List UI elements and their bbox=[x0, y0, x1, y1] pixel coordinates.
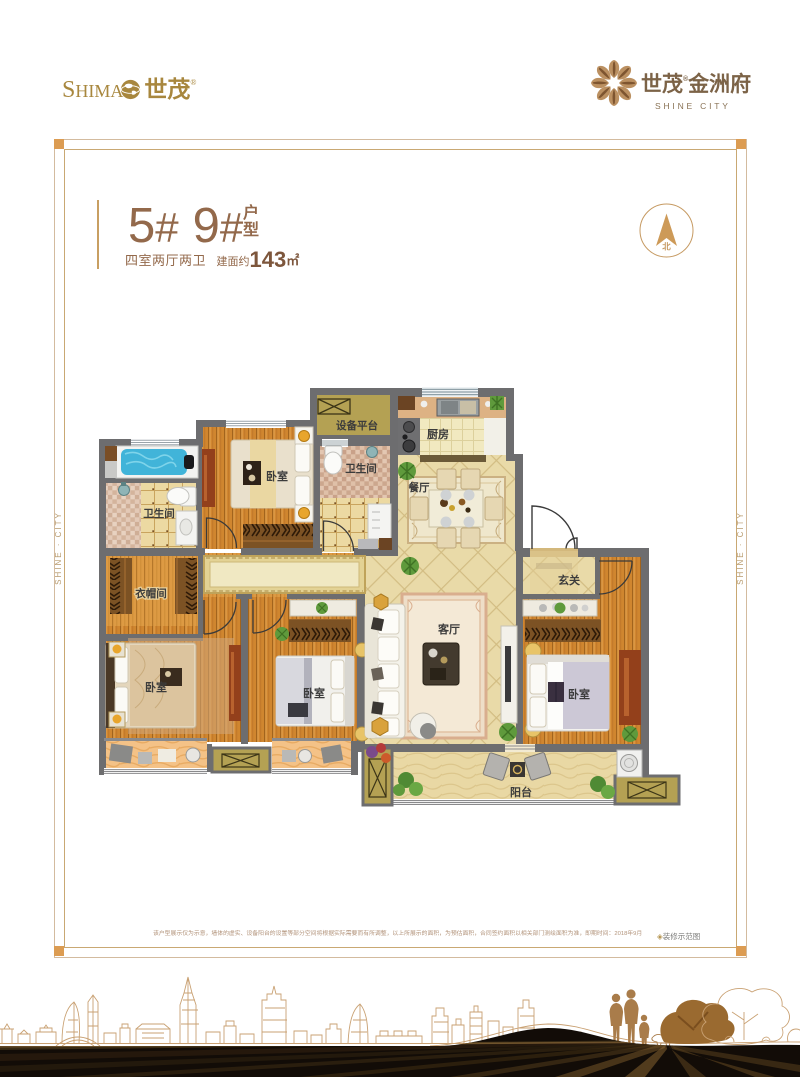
svg-text:衣帽间: 衣帽间 bbox=[135, 587, 167, 600]
svg-text:餐厅: 餐厅 bbox=[408, 481, 430, 494]
svg-text:卧室: 卧室 bbox=[568, 687, 590, 701]
svg-text:玄关: 玄关 bbox=[558, 573, 580, 587]
svg-text:阳台: 阳台 bbox=[510, 785, 532, 799]
svg-text:客厅: 客厅 bbox=[437, 622, 460, 636]
svg-text:卫生间: 卫生间 bbox=[345, 462, 377, 475]
svg-text:卧室: 卧室 bbox=[303, 686, 325, 700]
svg-text:卫生间: 卫生间 bbox=[143, 507, 175, 520]
svg-text:卧室: 卧室 bbox=[145, 680, 167, 694]
svg-text:设备平台: 设备平台 bbox=[336, 419, 378, 432]
svg-text:厨房: 厨房 bbox=[427, 427, 449, 441]
svg-text:卧室: 卧室 bbox=[266, 469, 288, 483]
